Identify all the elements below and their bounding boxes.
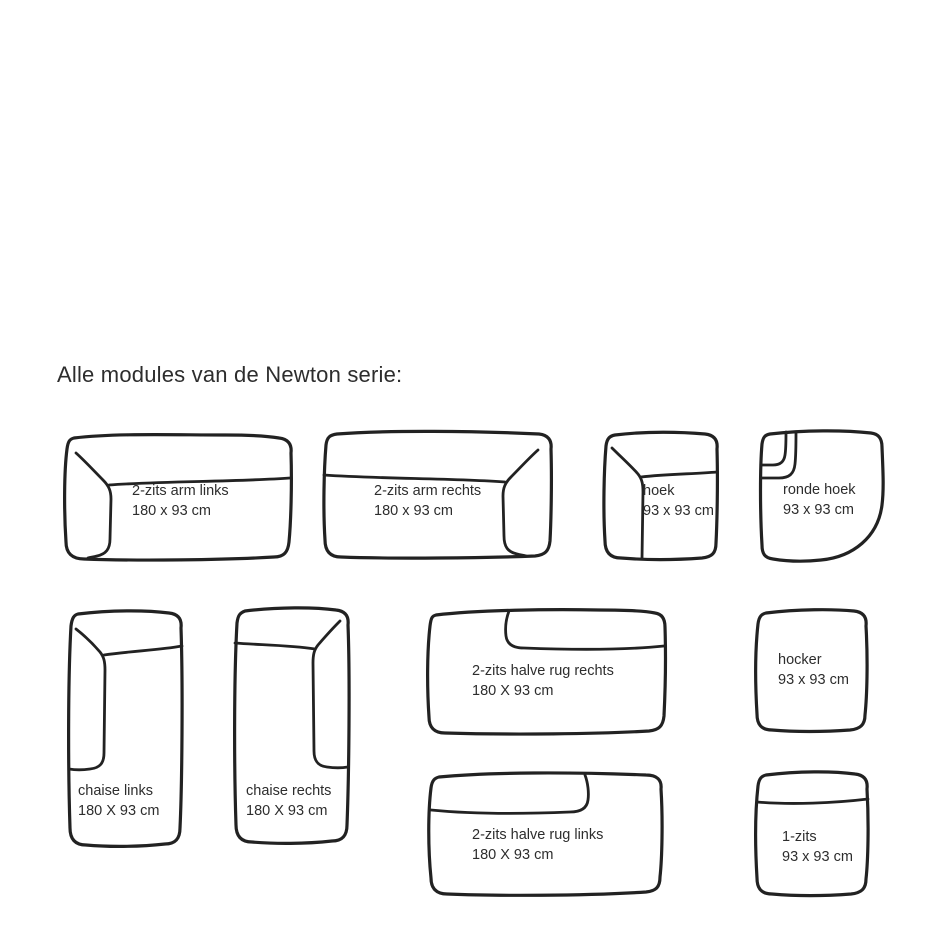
module-label: 1-zits 93 x 93 cm [782, 828, 853, 867]
module-label: 2-zits halve rug rechts 180 X 93 cm [472, 662, 614, 701]
module-name: 2-zits halve rug links [472, 826, 603, 846]
module-name: ronde hoek [783, 481, 856, 501]
newton-series-diagram: Alle modules van de Newton serie: 2-zits… [0, 0, 940, 940]
module-size: 93 x 93 cm [782, 848, 853, 868]
module-name: 2-zits arm rechts [374, 482, 481, 502]
module-label: 2-zits arm rechts 180 x 93 cm [374, 482, 481, 521]
module-label: chaise links 180 X 93 cm [78, 782, 159, 821]
module-size: 93 x 93 cm [783, 501, 856, 521]
module-label: 2-zits arm links 180 x 93 cm [132, 482, 229, 521]
module-2-zits-halve-rug-links: 2-zits halve rug links 180 X 93 cm [423, 769, 669, 898]
module-hocker: hocker 93 x 93 cm [749, 605, 874, 735]
module-size: 180 X 93 cm [78, 802, 159, 822]
module-name: 2-zits halve rug rechts [472, 662, 614, 682]
module-2-zits-arm-links: 2-zits arm links 180 x 93 cm [58, 430, 296, 564]
module-name: 2-zits arm links [132, 482, 229, 502]
module-size: 93 x 93 cm [778, 671, 849, 691]
module-name: chaise rechts [246, 782, 331, 802]
module-size: 93 x 93 cm [643, 502, 714, 522]
module-2-zits-arm-rechts: 2-zits arm rechts 180 x 93 cm [318, 427, 556, 563]
module-size: 180 X 93 cm [472, 846, 603, 866]
module-ronde-hoek: ronde hoek 93 x 93 cm [756, 427, 887, 567]
module-1-zits: 1-zits 93 x 93 cm [749, 768, 876, 898]
module-size: 180 X 93 cm [472, 682, 614, 702]
module-label: hoek 93 x 93 cm [643, 482, 714, 521]
module-label: chaise rechts 180 X 93 cm [246, 782, 331, 821]
module-hoek: hoek 93 x 93 cm [599, 428, 723, 564]
module-name: hoek [643, 482, 714, 502]
module-label: ronde hoek 93 x 93 cm [783, 481, 856, 520]
module-size: 180 x 93 cm [374, 502, 481, 522]
module-name: 1-zits [782, 828, 853, 848]
module-2-zits-halve-rug-rechts: 2-zits halve rug rechts 180 X 93 cm [421, 606, 668, 738]
module-size: 180 x 93 cm [132, 502, 229, 522]
module-name: hocker [778, 651, 849, 671]
module-size: 180 X 93 cm [246, 802, 331, 822]
module-chaise-rechts: chaise rechts 180 X 93 cm [227, 604, 355, 848]
module-chaise-links: chaise links 180 X 93 cm [62, 606, 189, 851]
module-label: 2-zits halve rug links 180 X 93 cm [472, 826, 603, 865]
page-title: Alle modules van de Newton serie: [57, 362, 402, 388]
module-name: chaise links [78, 782, 159, 802]
module-label: hocker 93 x 93 cm [778, 651, 849, 690]
